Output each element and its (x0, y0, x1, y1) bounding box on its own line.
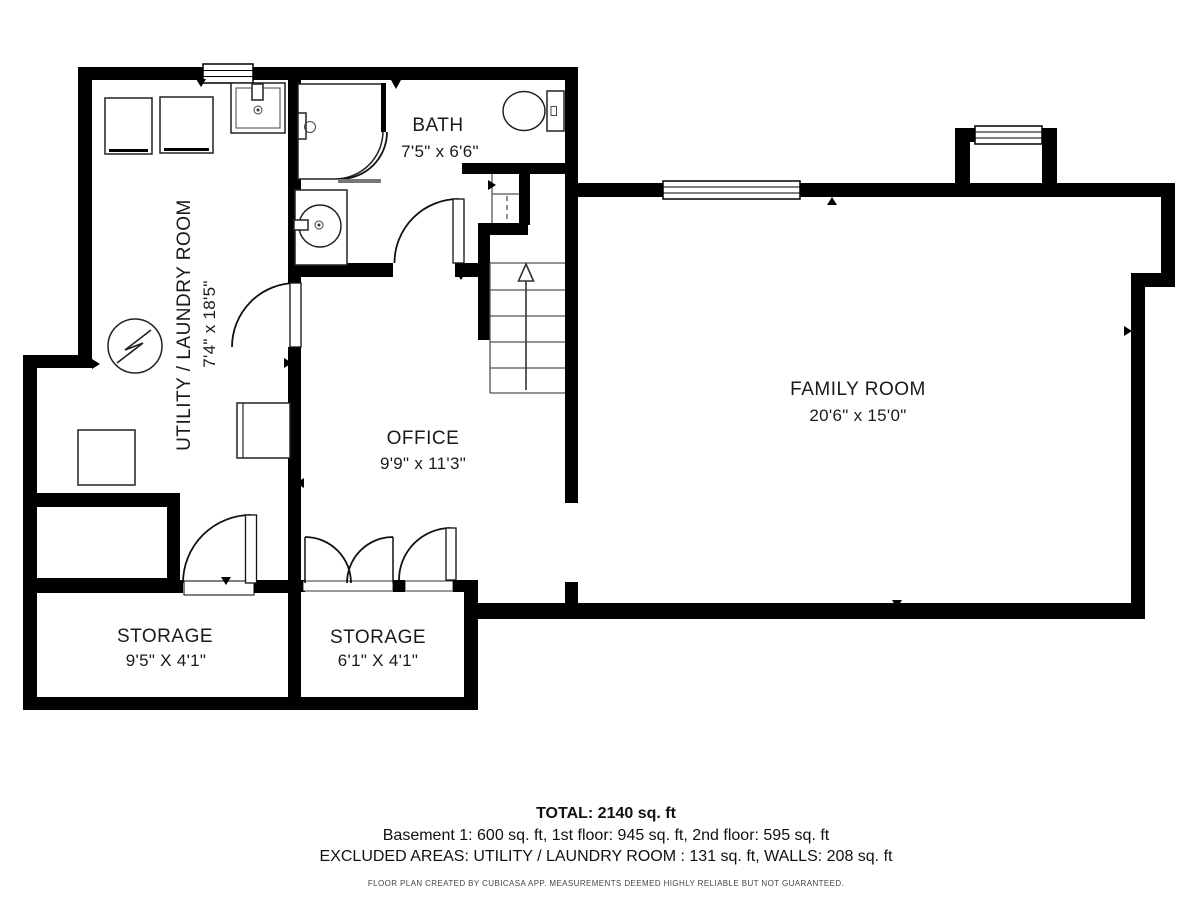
laundry-sink-icon (231, 83, 285, 133)
double-door-swing-icon (303, 537, 393, 591)
room-dims-utility-laundry: 7'4" x 18'5" (200, 280, 219, 367)
room-label-office: OFFICE (387, 428, 460, 449)
room-label-storage-mid: STORAGE (330, 627, 426, 648)
room-dims-storage-mid: 6'1" X 4'1" (338, 651, 418, 670)
room-label-storage-left: STORAGE (117, 626, 213, 647)
window-icon (975, 126, 1042, 144)
bathroom-sink-icon (294, 190, 347, 265)
door-swing-icon (395, 199, 465, 263)
floor-plan-page: BATH 7'5" x 6'6" FAMILY ROOM 20'6" x 15'… (0, 0, 1200, 900)
door-swing-icon (399, 528, 456, 591)
window-icon (203, 64, 253, 83)
room-label-utility-laundry: UTILITY / LAUNDRY ROOM (174, 199, 195, 451)
toilet-icon (503, 91, 564, 131)
room-dims-storage-left: 9'5" X 4'1" (126, 651, 206, 670)
room-dims-office: 9'9" x 11'3" (380, 454, 466, 473)
room-label-bath: BATH (412, 115, 463, 136)
washer-icon (105, 98, 152, 154)
room-dims-family-room: 20'6" x 15'0" (809, 406, 906, 425)
window-icon (663, 181, 800, 199)
excluded-areas-text: EXCLUDED AREAS: UTILITY / LAUNDRY ROOM :… (320, 848, 894, 865)
door-swing-icon (183, 515, 257, 595)
water-heater-icon (237, 403, 290, 458)
total-area-text: TOTAL: 2140 sq. ft (536, 805, 677, 822)
disclaimer-text: FLOOR PLAN CREATED BY CUBICASA APP. MEAS… (368, 879, 844, 888)
floor-plan-drawing: BATH 7'5" x 6'6" FAMILY ROOM 20'6" x 15'… (0, 0, 1200, 900)
door-swing-icon (232, 283, 301, 347)
stairs-up-arrow-icon (519, 264, 534, 390)
room-label-family-room: FAMILY ROOM (790, 379, 926, 400)
freezer-icon (78, 430, 135, 485)
floor-areas-text: Basement 1: 600 sq. ft, 1st floor: 945 s… (383, 827, 830, 844)
area-summary: TOTAL: 2140 sq. ft Basement 1: 600 sq. f… (320, 805, 894, 888)
dryer-icon (160, 97, 213, 153)
electrical-panel-icon (108, 319, 162, 373)
room-dims-bath: 7'5" x 6'6" (401, 142, 479, 161)
shower-icon (298, 83, 387, 181)
exterior-walls (23, 67, 1175, 710)
